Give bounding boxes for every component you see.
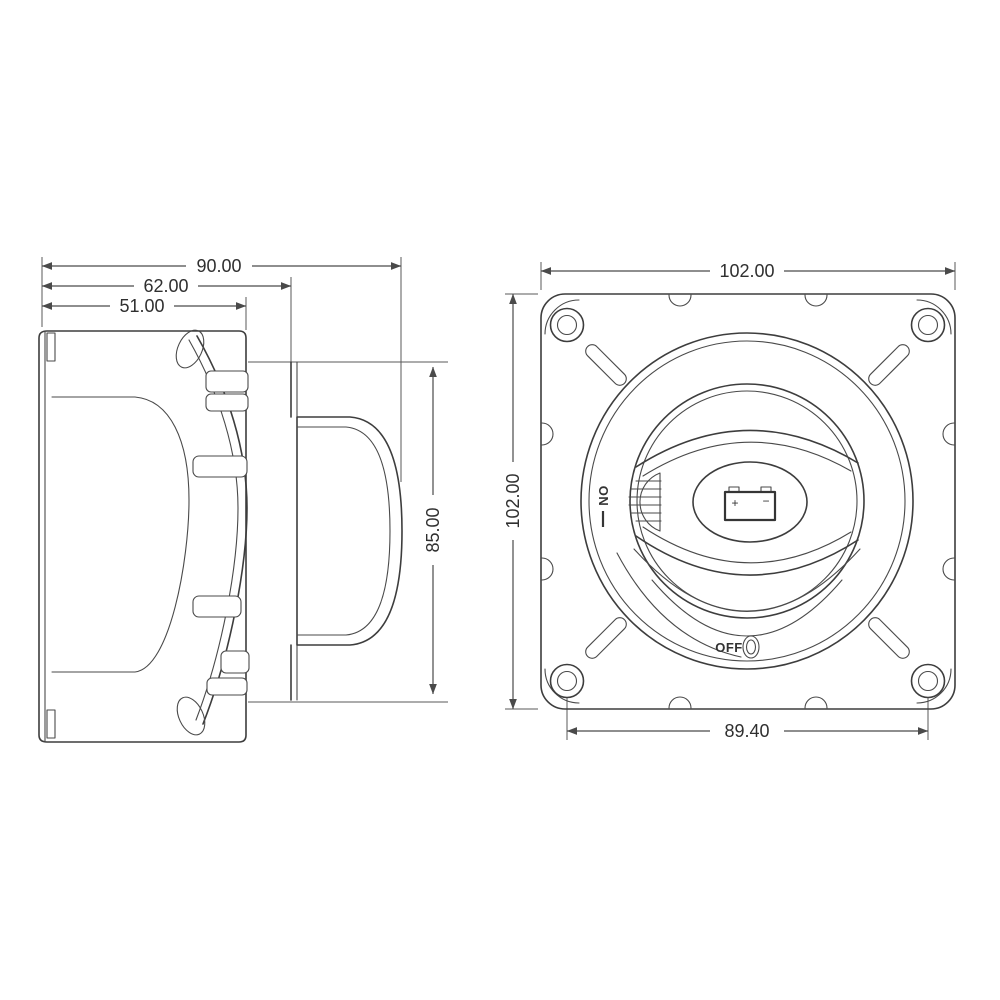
off-position-marker — [743, 636, 759, 658]
front-slot-bottom-right — [866, 615, 912, 661]
drawing-canvas: 90.00 62.00 51.00 85.00 — [0, 0, 1000, 1000]
side-dim-body-depth: 51.00 — [42, 296, 246, 316]
technical-drawing-page: 90.00 62.00 51.00 85.00 — [0, 0, 1000, 1000]
front-dim-plate-width-text: 102.00 — [719, 261, 774, 281]
side-tab-middle-upper — [193, 456, 247, 477]
side-dim-depth-to-panel-text: 62.00 — [143, 276, 188, 296]
side-mount-tabs — [193, 371, 249, 695]
front-dim-hole-spacing: 89.40 — [567, 721, 928, 741]
on-label: ON — [596, 486, 611, 507]
side-panel-edge — [291, 362, 297, 700]
front-dim-plate-width: 102.00 — [541, 261, 955, 281]
side-tab-bottom-1 — [221, 651, 249, 673]
side-back-notch-top — [47, 333, 55, 361]
side-view: 90.00 62.00 51.00 85.00 — [39, 256, 448, 742]
front-grip-serrations — [629, 473, 661, 531]
side-tab-middle-lower — [193, 596, 241, 617]
front-slot-top-left — [583, 342, 629, 388]
side-recessed-panel — [52, 397, 189, 672]
battery-minus-label: − — [762, 494, 769, 508]
battery-icon: + − — [725, 487, 775, 520]
battery-plus-label: + — [731, 496, 738, 510]
off-label: OFF — [715, 640, 743, 655]
front-view: 102.00 102.00 89.40 — [503, 261, 955, 741]
side-tab-top-2 — [206, 394, 248, 411]
front-dim-plate-height: 102.00 — [503, 294, 523, 709]
side-tab-top-1 — [206, 371, 248, 392]
side-dim-bezel-height: 85.00 — [423, 367, 443, 694]
side-dim-depth-to-panel: 62.00 — [42, 276, 291, 296]
front-dim-hole-spacing-text: 89.40 — [724, 721, 769, 741]
side-dim-overall-depth-text: 90.00 — [196, 256, 241, 276]
side-view-body — [39, 326, 402, 742]
front-slot-top-right — [866, 342, 912, 388]
side-back-notch-bottom — [47, 710, 55, 738]
side-dim-overall-depth: 90.00 — [42, 256, 401, 276]
side-dim-body-depth-text: 51.00 — [119, 296, 164, 316]
side-dim-bezel-height-text: 85.00 — [423, 507, 443, 552]
side-knob-profile — [297, 417, 402, 645]
side-lens-end-bottom — [172, 693, 211, 739]
front-switch: + − ON OFF — [581, 333, 913, 669]
front-slot-bottom-left — [583, 615, 629, 661]
front-dim-plate-height-text: 102.00 — [503, 473, 523, 528]
side-tab-bottom-2 — [207, 678, 247, 695]
